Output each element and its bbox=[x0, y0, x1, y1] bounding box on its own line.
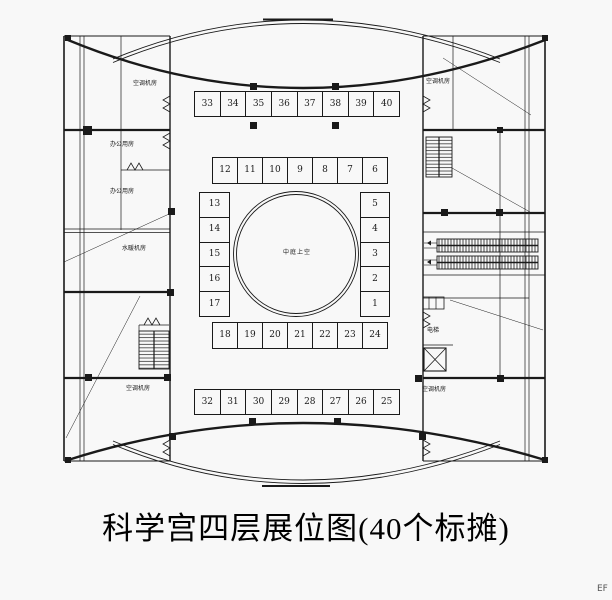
booth-cell: 34 bbox=[220, 92, 246, 116]
booth-cell: 28 bbox=[297, 390, 323, 414]
floor-plan-page: 33 34 35 36 37 38 39 40 12 11 10 9 8 7 6… bbox=[0, 0, 612, 600]
booth-cell: 30 bbox=[245, 390, 271, 414]
booth-cell: 17 bbox=[200, 291, 229, 316]
room-label-right-top: 空调机房 bbox=[426, 79, 450, 85]
booth-cell: 29 bbox=[271, 390, 297, 414]
booth-cell: 37 bbox=[297, 92, 323, 116]
room-label-left-mid-a: 办公用房 bbox=[110, 142, 134, 148]
staircase-top-right-icon bbox=[426, 137, 452, 177]
atrium-label: 中庭上空 bbox=[283, 250, 311, 256]
booth-row-top: 33 34 35 36 37 38 39 40 bbox=[194, 91, 400, 117]
booth-cell: 13 bbox=[200, 193, 229, 217]
booth-cell: 20 bbox=[262, 323, 287, 348]
booth-cell: 7 bbox=[337, 158, 362, 183]
booth-cell: 9 bbox=[287, 158, 312, 183]
booth-cell: 11 bbox=[237, 158, 262, 183]
booth-row-upper-inner: 12 11 10 9 8 7 6 bbox=[212, 157, 388, 184]
escalator-icon bbox=[424, 239, 538, 269]
left-wing-walls bbox=[64, 36, 170, 461]
booth-cell: 16 bbox=[200, 266, 229, 291]
booth-row-bottom: 32 31 30 29 28 27 26 25 bbox=[194, 389, 400, 415]
booth-cell: 27 bbox=[322, 390, 348, 414]
booth-cell: 32 bbox=[195, 390, 220, 414]
booth-cell: 15 bbox=[200, 242, 229, 267]
page-title: 科学宫四层展位图(40个标摊) bbox=[0, 503, 612, 548]
booth-cell: 40 bbox=[373, 92, 399, 116]
booth-cell: 39 bbox=[348, 92, 374, 116]
booth-cell: 3 bbox=[361, 242, 389, 267]
room-label-left-mid-b: 办公用房 bbox=[110, 189, 134, 195]
booth-row-lower-inner: 18 19 20 21 22 23 24 bbox=[212, 322, 388, 349]
staircase-bottom-left-icon bbox=[139, 325, 169, 369]
booth-cell: 22 bbox=[312, 323, 337, 348]
booth-cell: 21 bbox=[287, 323, 312, 348]
booth-cell: 25 bbox=[373, 390, 399, 414]
booth-column-left: 13 14 15 16 17 bbox=[199, 192, 230, 317]
corner-mark: EF bbox=[597, 584, 608, 594]
booth-cell: 6 bbox=[362, 158, 387, 183]
booth-cell: 5 bbox=[361, 193, 389, 217]
booth-cell: 19 bbox=[237, 323, 262, 348]
booth-cell: 33 bbox=[195, 92, 220, 116]
elevator-icon bbox=[424, 348, 446, 371]
booth-cell: 18 bbox=[213, 323, 237, 348]
room-label-right-bottom: 空调机房 bbox=[422, 387, 446, 393]
booth-cell: 14 bbox=[200, 217, 229, 242]
booth-cell: 10 bbox=[262, 158, 287, 183]
booth-cell: 8 bbox=[312, 158, 337, 183]
booth-cell: 12 bbox=[213, 158, 237, 183]
booth-cell: 38 bbox=[322, 92, 348, 116]
booth-cell: 24 bbox=[362, 323, 387, 348]
booth-cell: 36 bbox=[271, 92, 297, 116]
booth-cell: 1 bbox=[361, 291, 389, 316]
booth-cell: 35 bbox=[245, 92, 271, 116]
room-label-left-bottom: 空调机房 bbox=[126, 386, 150, 392]
room-label-left-top: 空调机房 bbox=[133, 81, 157, 87]
room-label-left-mid-c: 水暖机房 bbox=[122, 246, 146, 252]
booth-cell: 31 bbox=[220, 390, 246, 414]
booth-cell: 4 bbox=[361, 217, 389, 242]
booth-column-right: 5 4 3 2 1 bbox=[360, 192, 390, 317]
booth-cell: 2 bbox=[361, 266, 389, 291]
room-label-elevator: 电梯 bbox=[427, 328, 439, 334]
booth-cell: 23 bbox=[337, 323, 362, 348]
booth-cell: 26 bbox=[348, 390, 374, 414]
